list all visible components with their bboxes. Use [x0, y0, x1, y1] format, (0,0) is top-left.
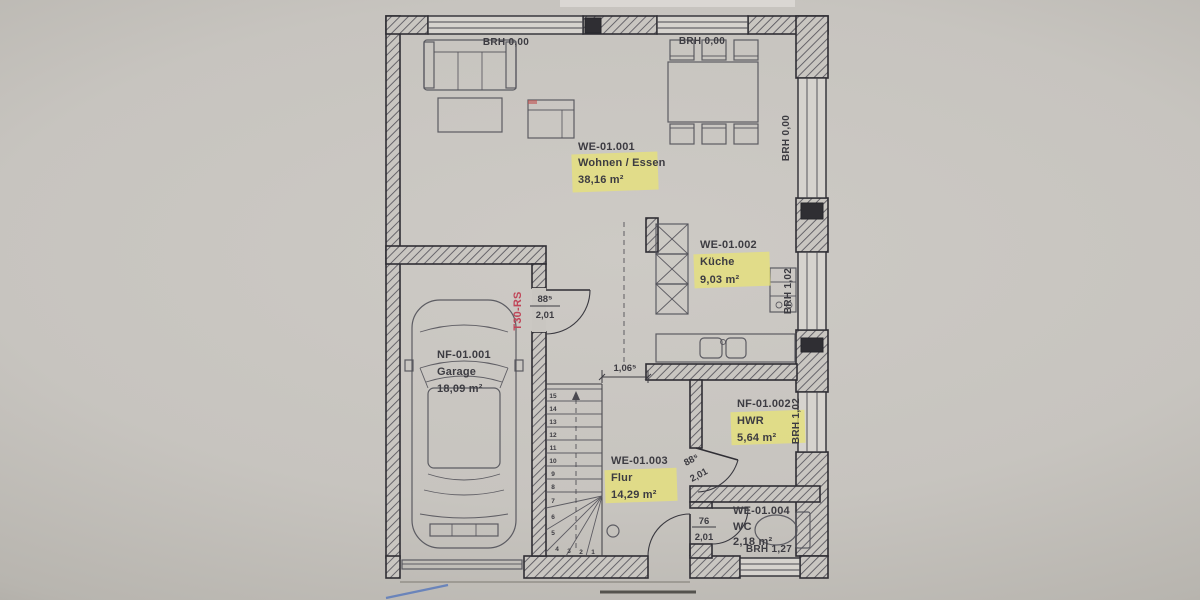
door-width: 76 [699, 516, 710, 527]
marker-highlights [571, 152, 805, 504]
door-height: 2,01 [688, 466, 710, 485]
stair-step-numbers: 15 14 13 12 11 10 9 8 7 6 5 4 3 2 1 [549, 393, 595, 556]
step-number: 2 [579, 549, 583, 556]
door-height: 2,01 [536, 310, 555, 321]
wc-door-dimension: 76 2,01 [692, 516, 716, 543]
room-name: Garage [437, 366, 476, 378]
sill-label-top-right: BRH 0,00 [679, 36, 725, 47]
wall-pier [801, 203, 823, 219]
car [405, 300, 523, 548]
staircase: 15 14 13 12 11 10 9 8 7 6 5 4 3 2 1 [546, 384, 619, 556]
step-number: 14 [549, 406, 557, 413]
window-kitchen [798, 252, 826, 330]
room-id: WE-01.003 [611, 455, 668, 467]
sill-label-right-upper: BRH 0,00 [781, 115, 792, 161]
dining-chair [734, 124, 758, 144]
door-width: 88⁵ [682, 452, 700, 469]
door-height: 2,01 [695, 532, 714, 543]
sill-label-wc: BRH 1,27 [746, 544, 792, 555]
step-number: 8 [551, 484, 555, 491]
step-number: 9 [551, 471, 555, 478]
door-width: 88⁵ [537, 294, 552, 305]
window-wc [740, 558, 800, 576]
room-id: NF-01.002 [737, 398, 791, 410]
room-wc-label: WE-01.004 WC 2,18 m² [733, 505, 791, 548]
room-id: WE-01.002 [700, 239, 757, 251]
step-number: 3 [567, 548, 571, 555]
kitchen-sink [700, 338, 722, 358]
window-right-living [798, 78, 826, 198]
step-number: 15 [549, 393, 557, 400]
floor-plan-svg: 15 14 13 12 11 10 9 8 7 6 5 4 3 2 1 [0, 0, 1200, 600]
room-name: Flur [611, 472, 633, 484]
room-id: NF-01.001 [437, 349, 491, 361]
step-number: 4 [555, 546, 559, 553]
dining-chairs [670, 40, 758, 144]
floor-plan-photo: 15 14 13 12 11 10 9 8 7 6 5 4 3 2 1 [0, 0, 1200, 600]
room-area: 38,16 m² [578, 174, 624, 186]
room-area: 18,09 m² [437, 383, 483, 395]
window-top-left [428, 16, 583, 34]
dining-chair [670, 124, 694, 144]
sill-label-hwr: BRH 1,02 [791, 398, 802, 444]
wall-pier [585, 18, 601, 33]
sill-label-top-left: BRH 0,00 [483, 37, 529, 48]
paper-edge-glare [560, 0, 795, 7]
red-pen-mark [528, 100, 537, 104]
step-number: 7 [551, 498, 555, 505]
room-id: WE-01.004 [733, 505, 791, 517]
kitchen-counter [656, 334, 795, 362]
room-name: WC [733, 521, 752, 533]
dining-chair [734, 40, 758, 60]
step-number: 6 [551, 514, 555, 521]
room-name: Wohnen / Essen [578, 157, 666, 169]
dining-chair [702, 124, 726, 144]
hall-passage-dimension: 1,06⁵ [599, 363, 651, 383]
step-number: 12 [549, 432, 557, 439]
hall-passage-dim-label: 1,06⁵ [614, 363, 637, 374]
hwr-door-dimension: 88⁵ 2,01 [682, 452, 710, 485]
side-table [528, 100, 574, 138]
stair-direction-arrow [572, 391, 580, 400]
step-number: 13 [549, 419, 557, 426]
room-area: 14,29 m² [611, 489, 657, 501]
dining-table [668, 62, 758, 122]
room-id: WE-01.001 [578, 141, 635, 153]
entrance-door [648, 514, 690, 556]
kitchen-tall-cabinets [656, 224, 688, 314]
step-number: 11 [550, 445, 557, 452]
newel-post [607, 525, 619, 537]
room-area: 5,64 m² [737, 432, 776, 444]
room-area: 9,03 m² [700, 274, 739, 286]
garage-sectional-door [402, 560, 522, 569]
window-top-right [657, 16, 748, 34]
sill-label-kitchen: BRH 1,02 [783, 268, 794, 314]
sink-tap [721, 340, 726, 345]
coffee-table [438, 98, 502, 132]
step-number: 1 [591, 549, 595, 556]
step-number: 5 [551, 530, 555, 537]
room-name: HWR [737, 415, 764, 427]
wall-pier [801, 338, 823, 352]
room-name: Küche [700, 256, 735, 268]
fire-door-rating-label: T30-RS [512, 291, 524, 330]
kitchen-sink [726, 338, 746, 358]
blue-pen-mark [386, 585, 448, 598]
step-number: 10 [549, 458, 557, 465]
